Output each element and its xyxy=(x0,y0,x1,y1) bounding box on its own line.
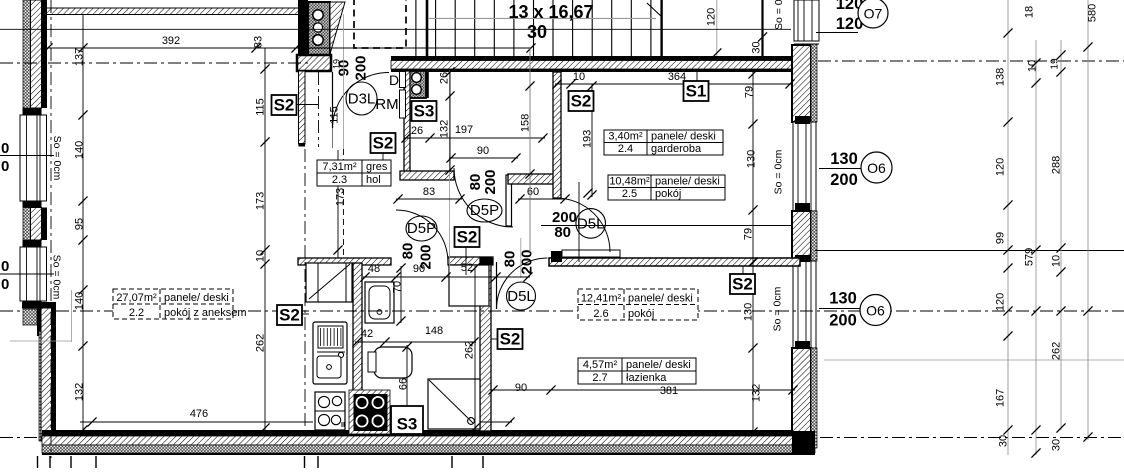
svg-text:S2: S2 xyxy=(373,134,394,153)
svg-text:60: 60 xyxy=(527,186,539,198)
svg-text:panele/ deski: panele/ deski xyxy=(164,292,229,304)
svg-text:panele/ deski: panele/ deski xyxy=(655,176,720,188)
svg-text:2.6: 2.6 xyxy=(593,308,608,320)
svg-text:392: 392 xyxy=(162,35,180,47)
svg-text:panele/ deski: panele/ deski xyxy=(628,293,693,305)
svg-text:0: 0 xyxy=(1,158,9,175)
svg-text:130: 130 xyxy=(743,303,755,321)
svg-text:197: 197 xyxy=(455,124,473,136)
svg-text:S2: S2 xyxy=(274,96,295,115)
svg-text:panele/ deski: panele/ deski xyxy=(651,131,716,143)
svg-text:2.2: 2.2 xyxy=(129,307,144,319)
svg-text:30: 30 xyxy=(998,435,1010,447)
svg-text:130: 130 xyxy=(829,290,857,308)
svg-text:140: 140 xyxy=(74,292,86,310)
svg-text:3,40m²: 3,40m² xyxy=(608,131,643,143)
svg-text:S2: S2 xyxy=(457,228,478,247)
svg-text:So = 0cm: So = 0cm xyxy=(773,0,785,30)
svg-text:130: 130 xyxy=(746,150,758,168)
svg-text:10: 10 xyxy=(573,71,585,83)
svg-text:140: 140 xyxy=(74,141,86,159)
svg-text:99: 99 xyxy=(995,232,1007,244)
svg-text:90: 90 xyxy=(413,263,425,275)
svg-text:200: 200 xyxy=(482,169,499,194)
svg-text:O6: O6 xyxy=(867,160,886,176)
svg-text:D5L: D5L xyxy=(507,288,535,305)
svg-text:48: 48 xyxy=(368,263,380,275)
svg-text:0: 0 xyxy=(1,276,9,293)
svg-text:95: 95 xyxy=(74,218,86,230)
svg-text:So = 0cm: So = 0cm xyxy=(772,286,784,331)
svg-text:4,57m²: 4,57m² xyxy=(583,359,618,371)
svg-text:26: 26 xyxy=(439,72,451,84)
svg-text:pokój z aneksem: pokój z aneksem xyxy=(164,307,247,319)
svg-text:120: 120 xyxy=(995,158,1007,176)
svg-text:19: 19 xyxy=(332,59,342,69)
svg-text:O7: O7 xyxy=(864,6,883,22)
svg-text:S2: S2 xyxy=(500,330,521,349)
svg-text:garderoba: garderoba xyxy=(651,143,702,155)
svg-text:S1: S1 xyxy=(686,82,707,101)
svg-text:83: 83 xyxy=(423,186,435,198)
svg-text:2.7: 2.7 xyxy=(592,372,607,384)
svg-text:10: 10 xyxy=(1027,60,1039,72)
svg-text:262: 262 xyxy=(1051,342,1063,360)
svg-text:łazienka: łazienka xyxy=(626,372,667,384)
svg-text:381: 381 xyxy=(660,385,678,397)
svg-text:90: 90 xyxy=(515,382,527,394)
svg-text:pokój: pokój xyxy=(655,188,681,200)
svg-text:120: 120 xyxy=(706,8,718,26)
svg-text:D5L: D5L xyxy=(577,215,605,232)
svg-text:10: 10 xyxy=(1051,255,1063,267)
svg-text:115: 115 xyxy=(329,106,341,124)
svg-text:167: 167 xyxy=(995,389,1007,407)
svg-text:79: 79 xyxy=(743,228,755,240)
svg-text:90: 90 xyxy=(477,145,489,157)
svg-text:D5P: D5P xyxy=(407,220,436,237)
svg-text:12,41m²: 12,41m² xyxy=(581,293,622,305)
svg-text:132: 132 xyxy=(439,120,451,138)
svg-text:476: 476 xyxy=(190,408,208,420)
svg-text:200: 200 xyxy=(353,55,370,80)
svg-text:115: 115 xyxy=(255,98,267,116)
svg-text:D5P: D5P xyxy=(470,202,499,219)
svg-text:200: 200 xyxy=(830,171,858,189)
svg-text:83: 83 xyxy=(253,36,265,48)
svg-text:D: D xyxy=(389,72,399,88)
svg-text:S3: S3 xyxy=(397,415,418,434)
svg-text:80: 80 xyxy=(554,224,571,241)
svg-text:579: 579 xyxy=(1024,248,1036,266)
svg-text:O6: O6 xyxy=(866,303,885,319)
svg-text:10,48m²: 10,48m² xyxy=(609,176,650,188)
svg-text:So = 0cm: So = 0cm xyxy=(773,149,785,194)
svg-text:42: 42 xyxy=(361,328,373,340)
svg-text:173: 173 xyxy=(255,192,267,210)
svg-text:RM: RM xyxy=(375,96,398,113)
svg-text:2.4: 2.4 xyxy=(618,143,633,155)
svg-text:158: 158 xyxy=(520,114,532,132)
svg-text:26: 26 xyxy=(411,125,423,137)
svg-text:10: 10 xyxy=(255,250,267,262)
svg-text:70: 70 xyxy=(392,281,404,293)
svg-text:panele/ deski: panele/ deski xyxy=(626,359,691,371)
svg-text:173: 173 xyxy=(335,188,347,206)
svg-text:288: 288 xyxy=(1051,156,1063,174)
svg-text:262: 262 xyxy=(255,334,267,352)
svg-text:pokój: pokój xyxy=(628,308,654,320)
svg-text:262: 262 xyxy=(464,341,476,359)
svg-text:S2: S2 xyxy=(732,275,753,294)
svg-text:30: 30 xyxy=(527,22,547,42)
svg-text:2.5: 2.5 xyxy=(622,188,637,200)
svg-text:200: 200 xyxy=(829,312,857,330)
svg-text:0: 0 xyxy=(1,258,9,275)
svg-text:137: 137 xyxy=(74,48,86,66)
svg-text:19: 19 xyxy=(1050,58,1061,70)
svg-text:30: 30 xyxy=(751,41,763,53)
svg-text:27,07m²: 27,07m² xyxy=(116,292,157,304)
svg-text:D3L: D3L xyxy=(348,91,376,108)
svg-text:30: 30 xyxy=(1051,439,1063,451)
svg-text:gres: gres xyxy=(366,161,388,173)
svg-text:7,31m²: 7,31m² xyxy=(322,161,357,173)
svg-text:138: 138 xyxy=(995,68,1007,86)
svg-text:132: 132 xyxy=(751,384,763,402)
svg-text:148: 148 xyxy=(425,325,443,337)
svg-text:hol: hol xyxy=(366,174,381,186)
svg-text:120: 120 xyxy=(995,293,1007,311)
svg-text:80: 80 xyxy=(400,243,417,260)
svg-text:18: 18 xyxy=(1024,6,1036,18)
svg-text:0: 0 xyxy=(1,140,9,157)
svg-text:S2: S2 xyxy=(279,306,300,325)
svg-text:130: 130 xyxy=(830,150,858,168)
svg-text:80: 80 xyxy=(502,251,519,268)
svg-text:So = 0cm: So = 0cm xyxy=(51,255,63,300)
svg-text:580: 580 xyxy=(1087,4,1099,22)
svg-text:S3: S3 xyxy=(414,102,435,121)
svg-text:So = 0cm: So = 0cm xyxy=(51,136,63,181)
svg-text:79: 79 xyxy=(744,86,756,98)
svg-text:13 x 16,67: 13 x 16,67 xyxy=(508,2,593,22)
svg-text:193: 193 xyxy=(582,130,594,148)
svg-text:2.3: 2.3 xyxy=(332,174,347,186)
svg-text:132: 132 xyxy=(74,383,86,401)
svg-text:66: 66 xyxy=(398,378,410,390)
svg-text:S2: S2 xyxy=(571,92,592,111)
